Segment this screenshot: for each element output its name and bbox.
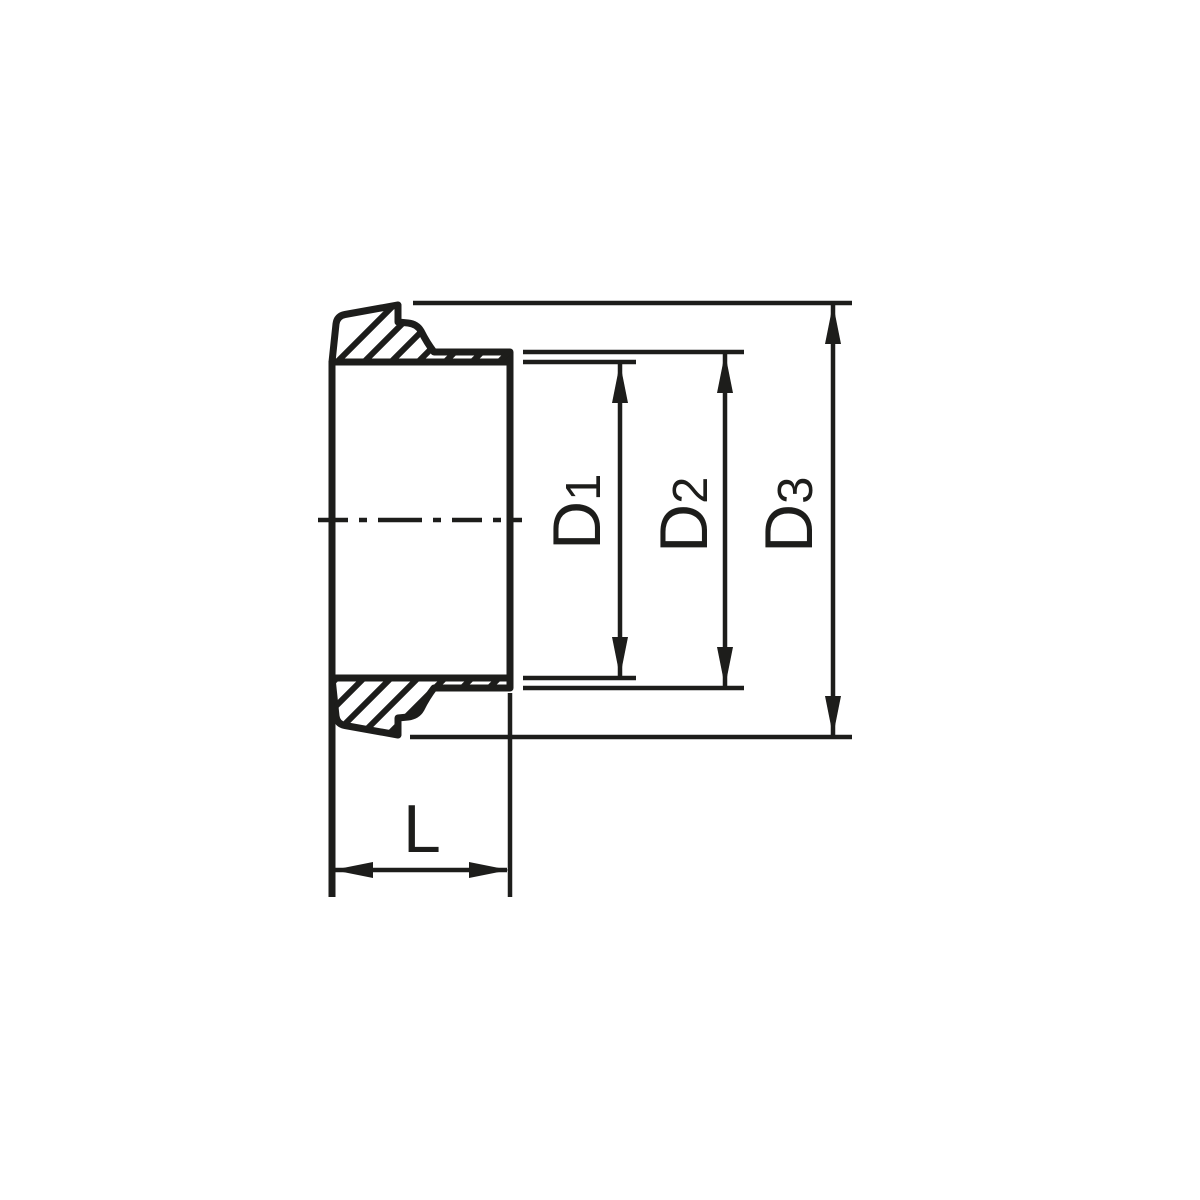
d1-index: 1 bbox=[557, 474, 611, 501]
engineering-drawing: D1 D2 D3 L bbox=[0, 0, 1200, 1200]
d2-index: 2 bbox=[664, 477, 718, 504]
technical-drawing-page: D1 D2 D3 L bbox=[0, 0, 1200, 1200]
d2-letter: D bbox=[646, 504, 722, 553]
d3-letter: D bbox=[751, 504, 827, 553]
dimension-label-l: L bbox=[403, 791, 441, 867]
drawing-background bbox=[0, 0, 1200, 1200]
d3-index: 3 bbox=[769, 477, 823, 504]
d1-letter: D bbox=[539, 501, 615, 550]
